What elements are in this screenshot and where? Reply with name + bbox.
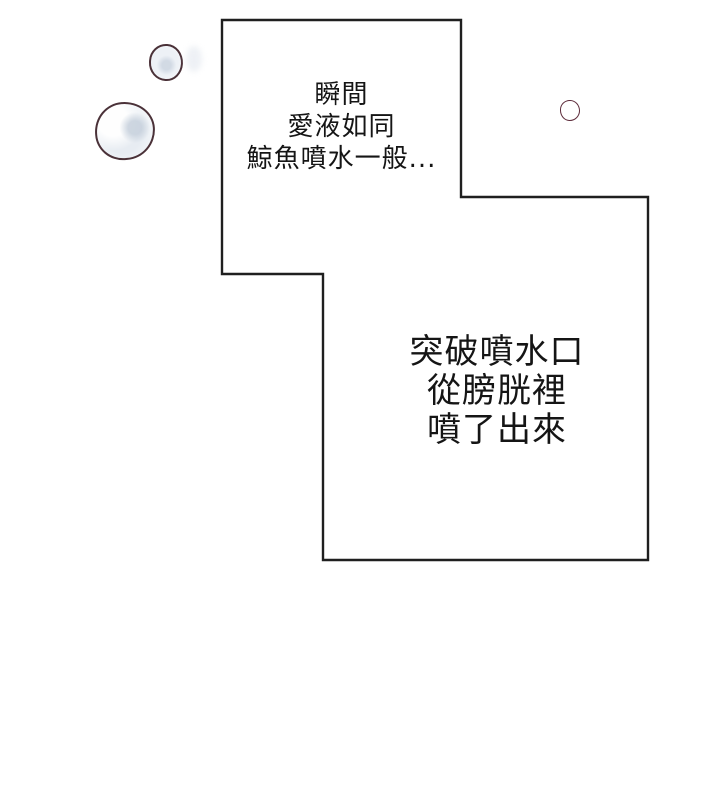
- balloon-text-top-line: 愛液如同: [222, 111, 461, 143]
- balloon-text-top-line: 鯨魚噴水一般...: [222, 143, 461, 175]
- manga-page: 瞬間 愛液如同 鯨魚噴水一般... 突破噴水口 從膀胱裡 噴了出來: [0, 0, 720, 793]
- balloon-text-bottom-line: 從膀胱裡: [334, 372, 660, 411]
- balloon-text-bottom-line: 突破噴水口: [334, 333, 660, 372]
- bubble-smudge: [186, 46, 202, 72]
- balloon-text-bottom: 突破噴水口 從膀胱裡 噴了出來: [334, 333, 660, 450]
- balloon-text-bottom-line: 噴了出來: [334, 411, 660, 450]
- balloon-text-top-line: 瞬間: [222, 79, 461, 111]
- small-circle-bubble: [560, 100, 580, 121]
- balloon-text-top: 瞬間 愛液如同 鯨魚噴水一般...: [222, 79, 461, 175]
